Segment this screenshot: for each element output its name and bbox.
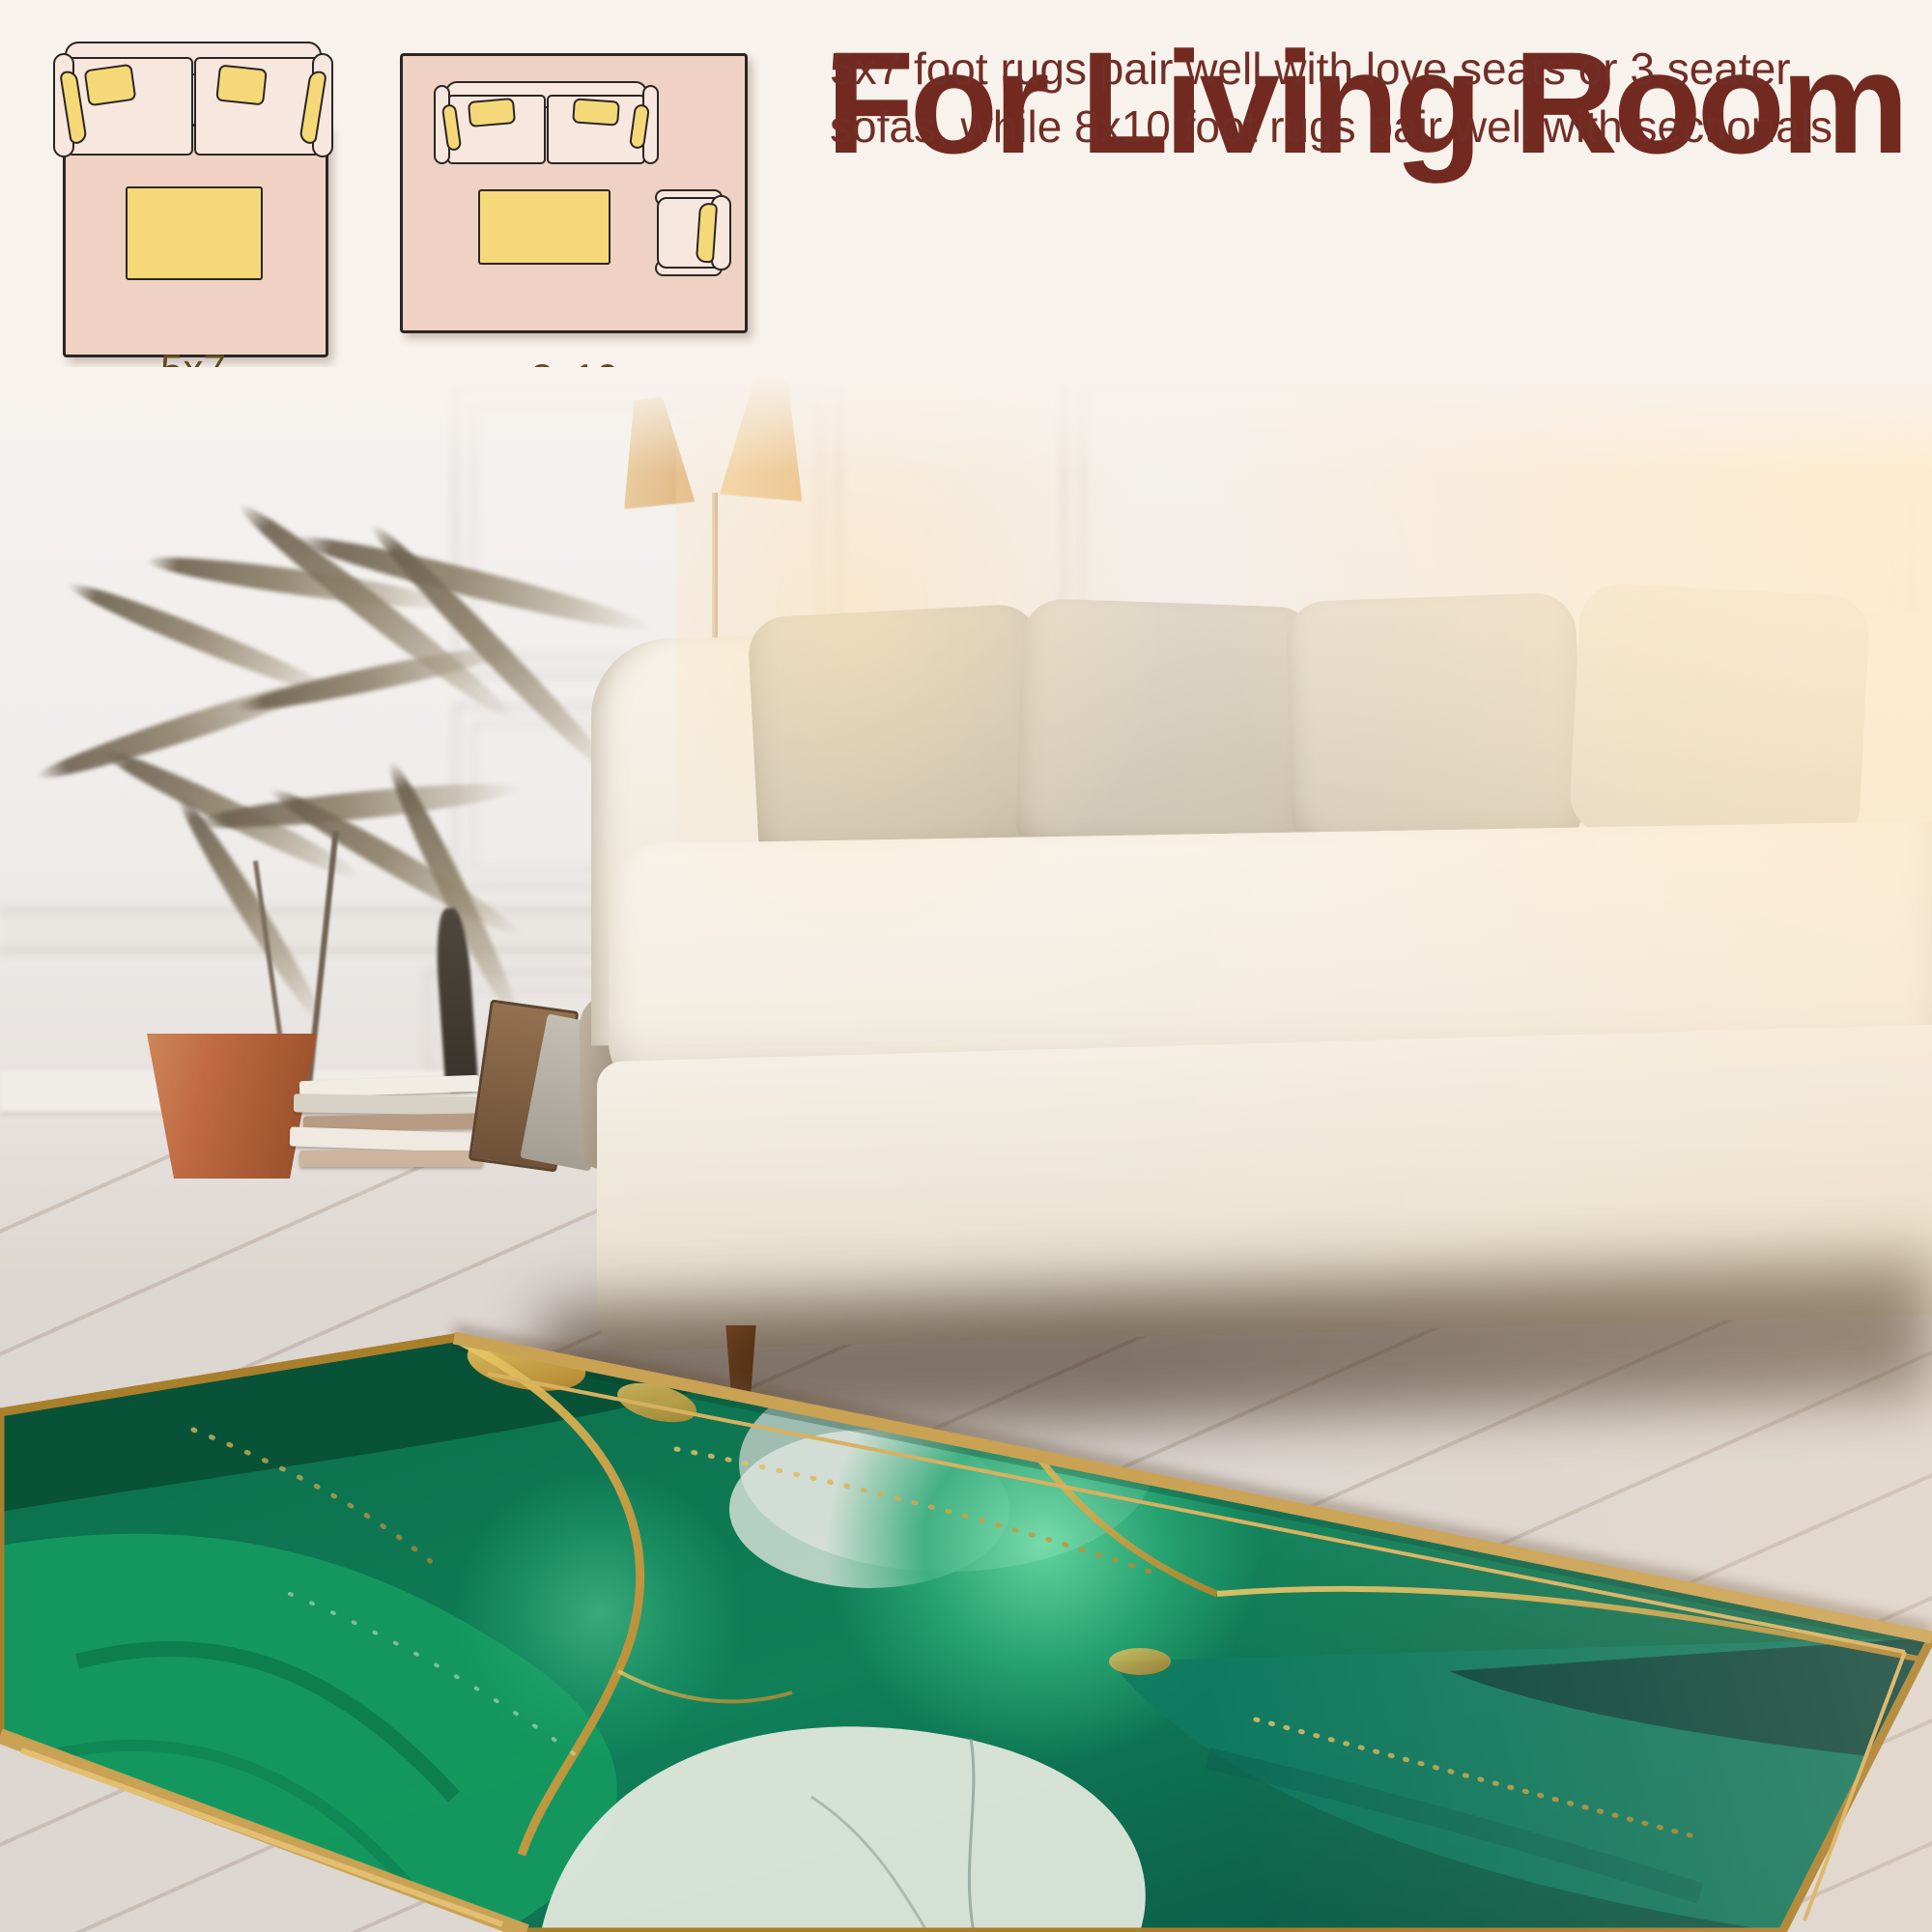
rug-size-diagram-5x7: 5x7: [39, 39, 348, 396]
loveseat-top-view-icon: [53, 42, 333, 161]
coffee-table-top-view-icon: [478, 189, 611, 265]
sofa-top-view-icon: [434, 81, 659, 166]
product-infographic: For Living Room 5x7 foot rugs pair well …: [0, 0, 1932, 1932]
description-line-1: 5x7 foot rugs pair well with love seats …: [830, 41, 1791, 99]
photo-top-fade: [0, 367, 1932, 473]
warm-light-wash: [0, 367, 1932, 1932]
description-line-2: sofas, while 8x10 foot rugs pair well wi…: [830, 99, 1845, 156]
header-text-block: For Living Room 5x7 foot rugs pair well …: [826, 27, 1918, 365]
coffee-table-top-view-icon: [126, 186, 263, 280]
rug-size-diagram-8x10: 8x10: [391, 29, 758, 401]
armchair-top-view-icon: [655, 189, 732, 276]
living-room-photo: [0, 367, 1932, 1932]
